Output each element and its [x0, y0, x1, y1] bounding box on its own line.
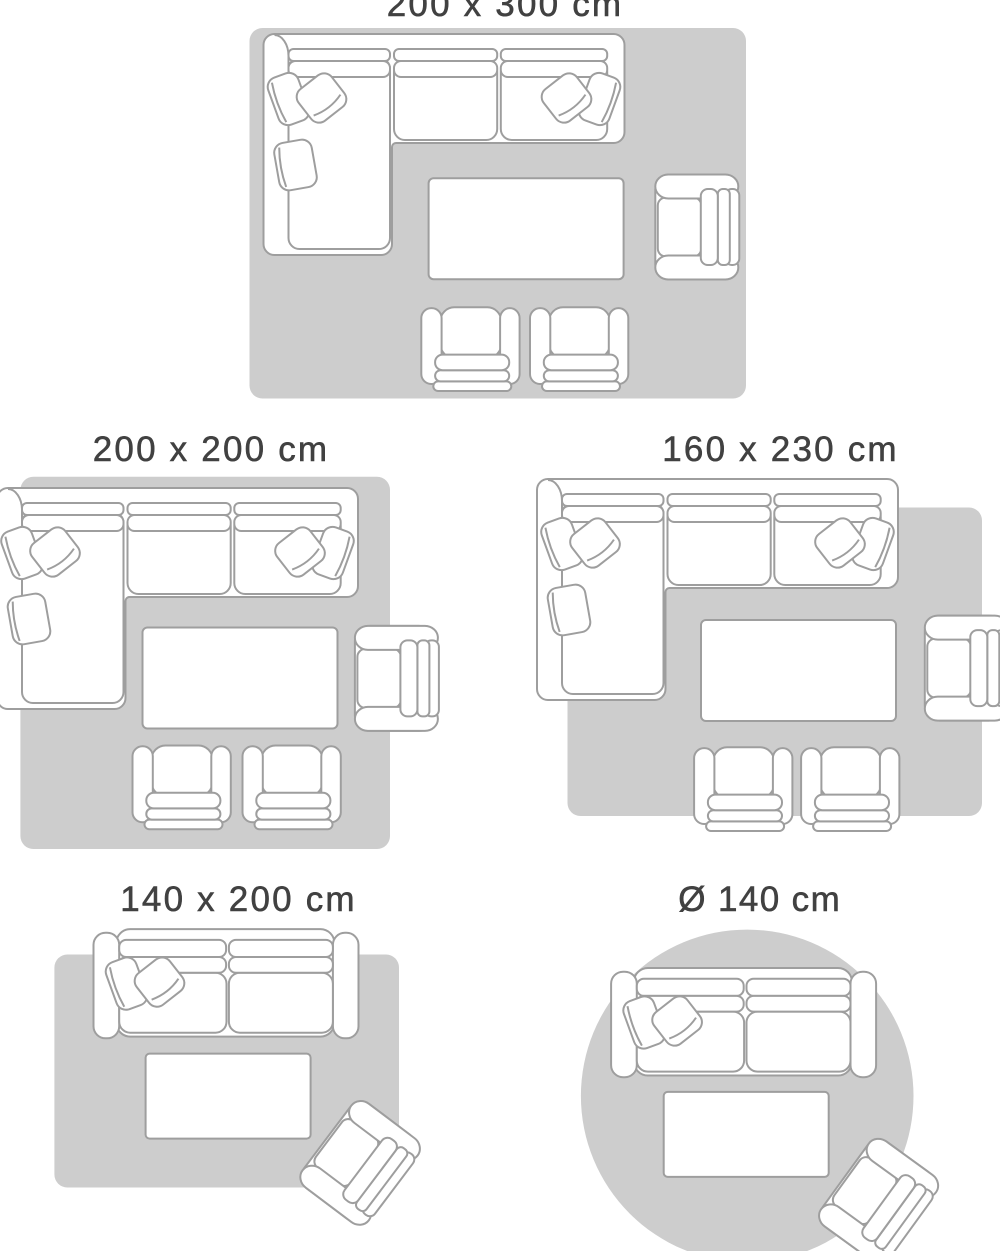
svg-text:140 x 200 cm: 140 x 200 cm [120, 880, 357, 919]
svg-text:Ø 140 cm: Ø 140 cm [678, 880, 841, 919]
svg-text:160 x 230 cm: 160 x 230 cm [662, 430, 899, 469]
svg-text:200 x 200 cm: 200 x 200 cm [93, 430, 330, 469]
svg-text:200 x 300 cm: 200 x 300 cm [387, 0, 624, 24]
